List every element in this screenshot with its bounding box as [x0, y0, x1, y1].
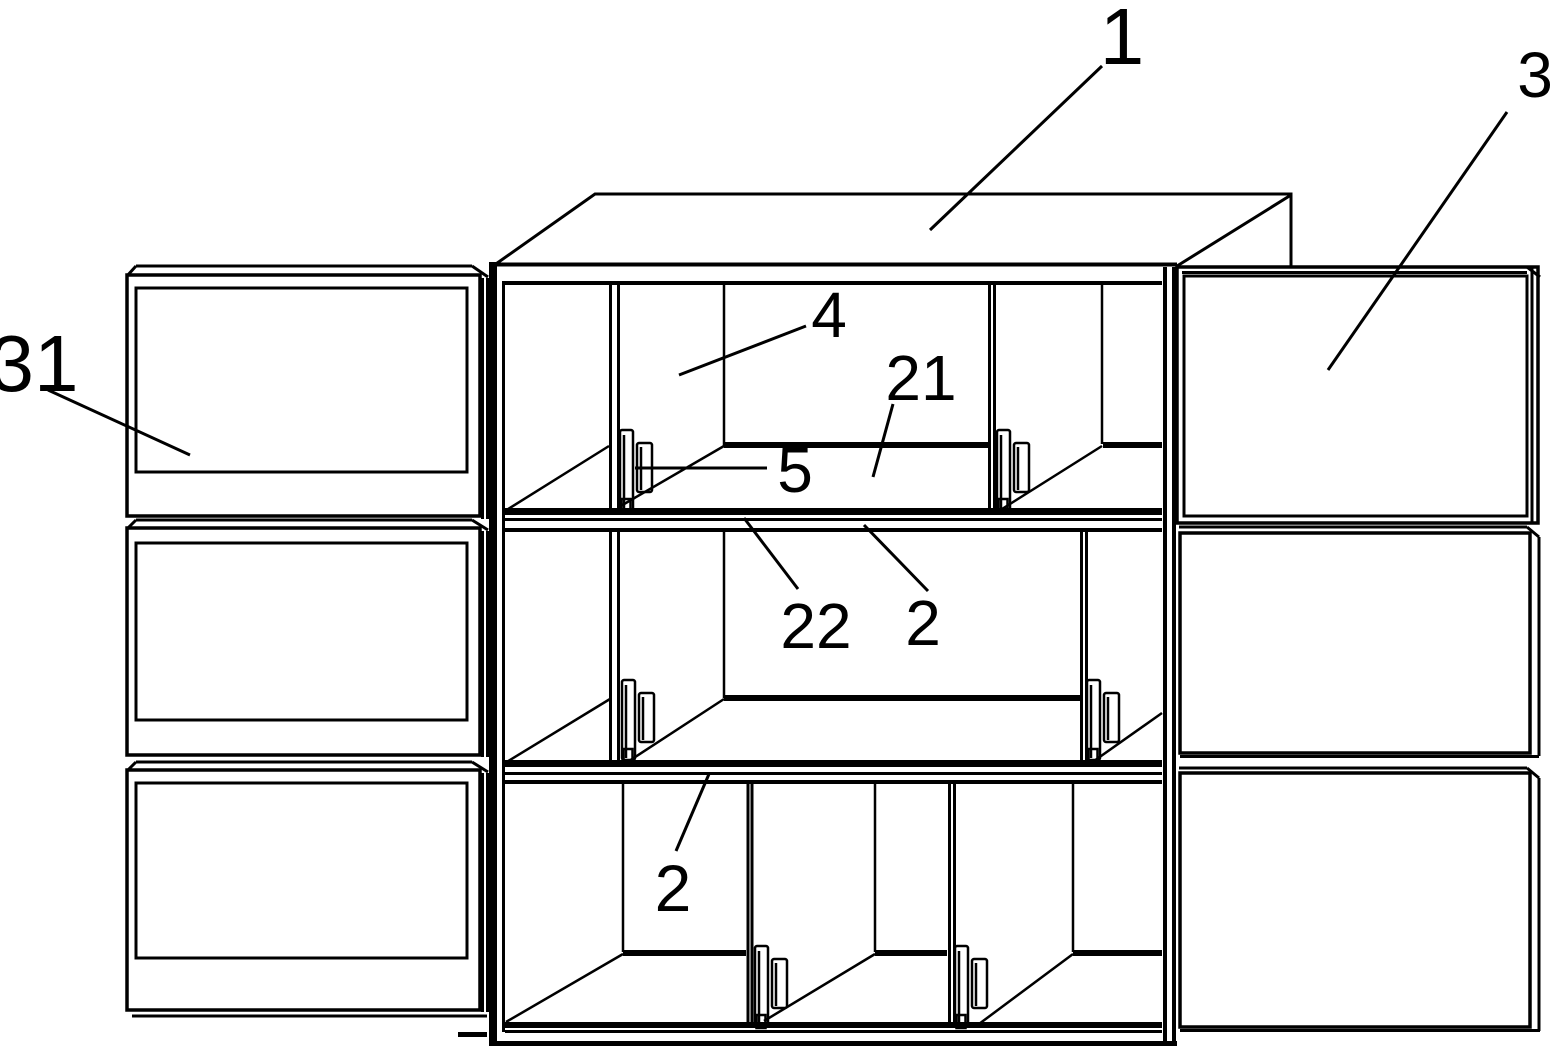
cabinet-line-art	[0, 0, 1556, 1050]
figure-canvas: 1 3 31 4 21 5 22 2 2	[0, 0, 1556, 1050]
leader-21	[873, 404, 893, 477]
callout-4: 4	[811, 283, 847, 347]
left-panel-stack	[127, 266, 488, 1037]
callout-2-middle: 2	[905, 591, 941, 655]
leader-3	[1328, 112, 1507, 370]
callout-22: 22	[780, 594, 851, 658]
callout-31: 31	[0, 324, 78, 404]
right-panel-stack	[1177, 267, 1540, 1031]
leader-2-bottom	[676, 774, 709, 851]
callout-3: 3	[1517, 43, 1553, 107]
cabinet-top-panel-lines	[493, 194, 1291, 266]
callout-5: 5	[777, 438, 813, 502]
floor-diagonal-lines	[505, 446, 1162, 1024]
callout-1: 1	[1100, 0, 1145, 77]
leader-1	[930, 66, 1102, 230]
leader-2-middle	[864, 525, 928, 591]
callout-21: 21	[885, 346, 956, 410]
callout-2-bottom: 2	[655, 855, 692, 921]
leader-4	[679, 326, 806, 375]
